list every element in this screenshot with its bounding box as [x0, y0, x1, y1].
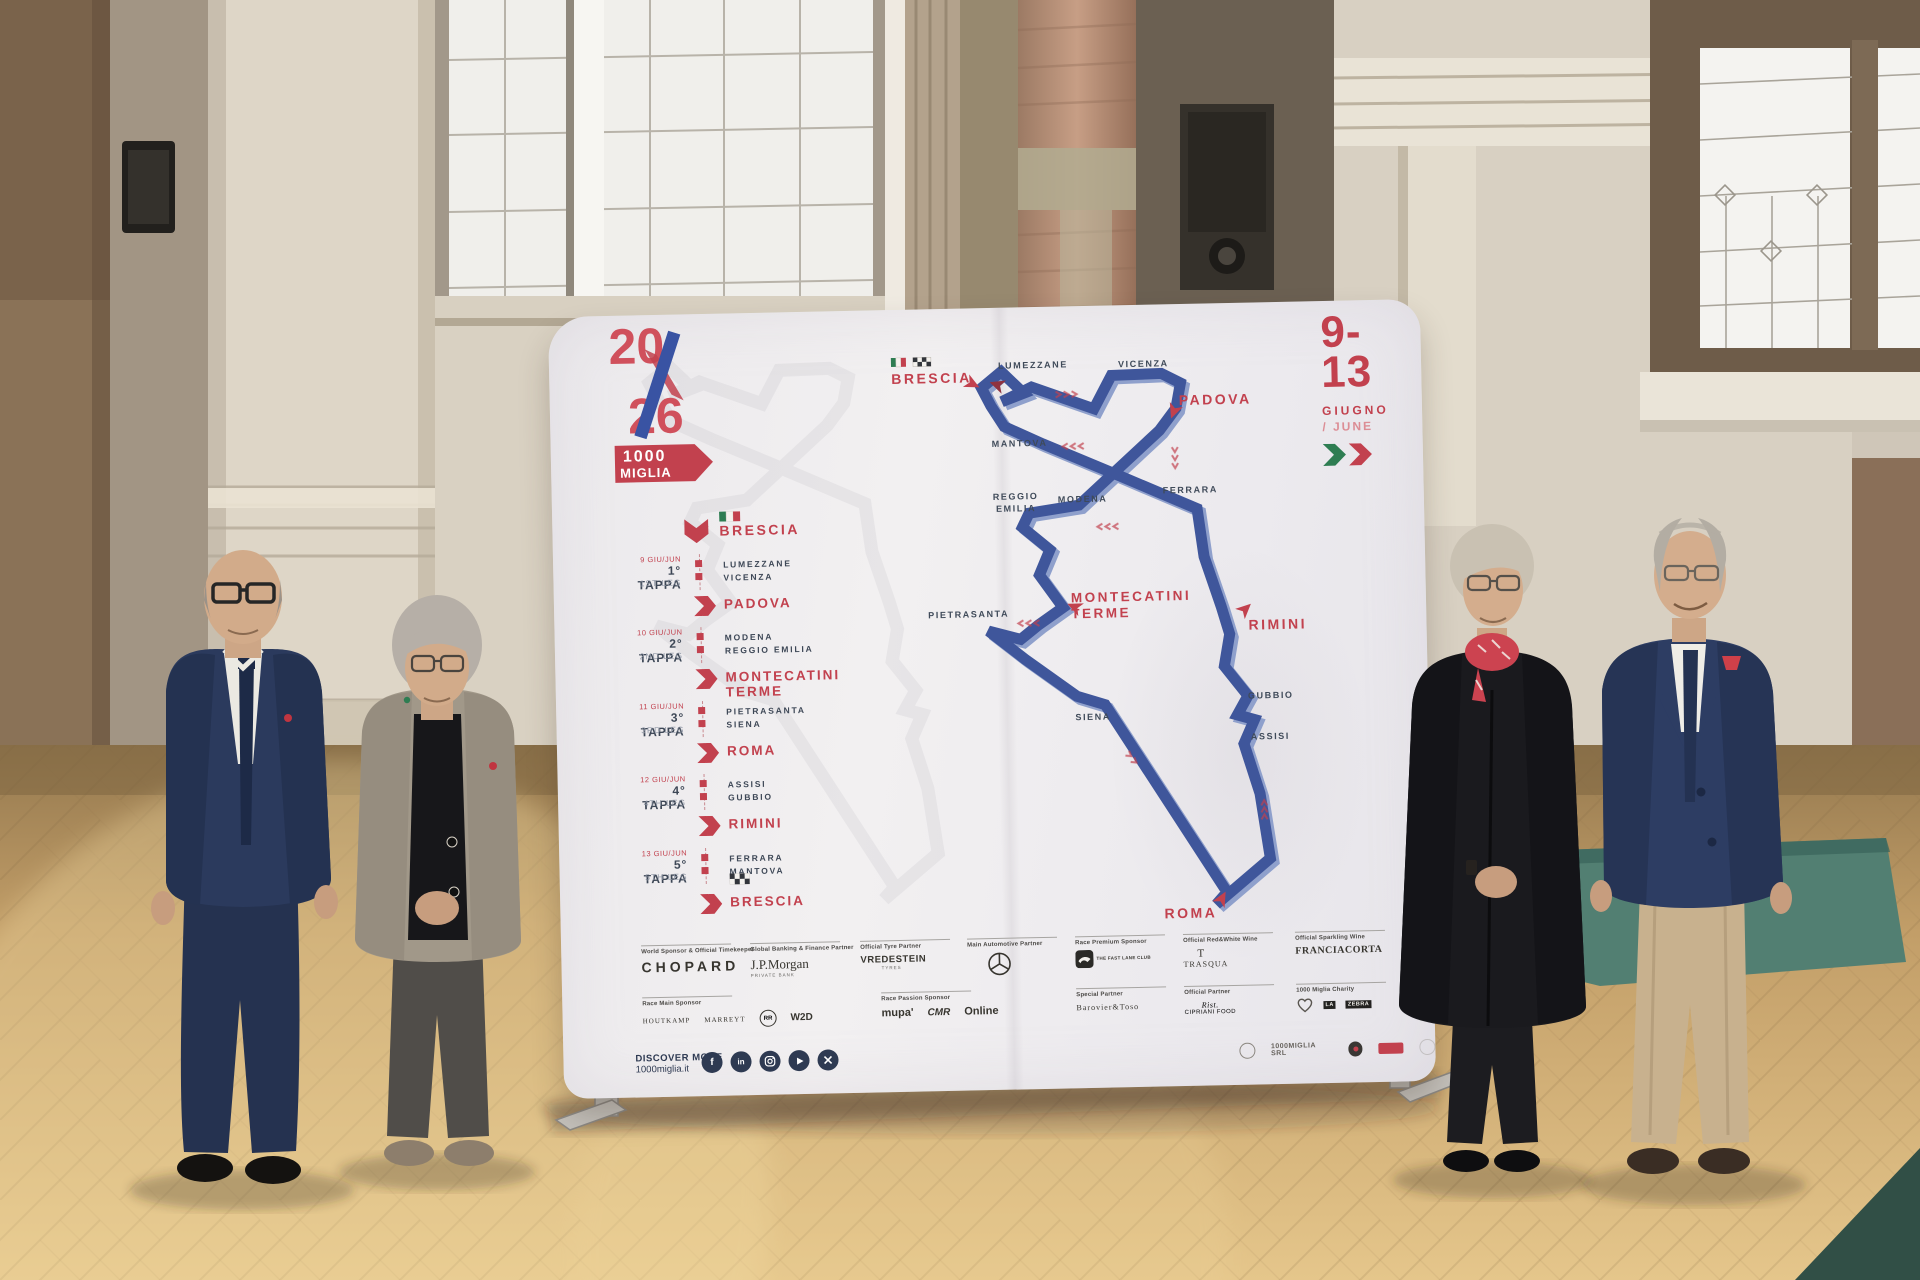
- waypoint-dot: [701, 854, 708, 861]
- chevron-right-icon: [700, 894, 722, 914]
- x-icon: [817, 1049, 838, 1070]
- sponsor-logo-text: THE FAST LANE CLUB: [1096, 955, 1151, 962]
- sponsor-logo-text: CMR: [927, 1006, 950, 1017]
- itinerary-leg-5: 13 GIU/JUN 5° TAPPA 5TH LEG FERRARA MANT…: [629, 844, 880, 921]
- leg-arrival: PADOVA: [724, 594, 874, 612]
- sponsor-group-charity: 1000 Miglia Charity LA ZEBRA: [1296, 981, 1427, 1013]
- right-window: [1640, 0, 1920, 432]
- sponsor-strip: World Sponsor & Official Timekeeper CHOP…: [633, 929, 1435, 1056]
- map-label-lumezzane: LUMEZZANE: [998, 359, 1068, 370]
- leg-arrival: RIMINI: [728, 814, 878, 832]
- zebra-logo-chip: ZEBRA: [1346, 1000, 1372, 1009]
- leg-arrival: ROMA: [727, 741, 877, 759]
- waypoint-dot: [698, 720, 705, 727]
- map-label-siena: SIENA: [1075, 712, 1111, 723]
- map-label-assisi: ASSISI: [1251, 731, 1290, 742]
- map-label-roma: ROMA: [1164, 904, 1217, 921]
- map-label-brescia: BRESCIA: [891, 369, 972, 387]
- map-label-modena: MODENA: [1058, 494, 1108, 505]
- sponsor-label: Race Main Sponsor: [642, 997, 872, 1008]
- waypoint-dot: [697, 633, 704, 640]
- leg-arrival: MONTECATINI TERME: [725, 667, 876, 699]
- sponsor-label: Race Premium Sponsor: [1075, 938, 1177, 946]
- linkedin-icon: in: [730, 1051, 751, 1072]
- leg-via: MODENA: [725, 632, 774, 643]
- mini-ring-logo: [1239, 1043, 1255, 1059]
- sponsor-logo-text: Online: [964, 1005, 998, 1018]
- miglia-red-badge: [1378, 1042, 1403, 1054]
- event-logo: 20 26 1000 MIGLIA: [606, 316, 720, 488]
- leg-via: REGGIO EMILIA: [725, 644, 814, 656]
- sponsor-label: World Sponsor & Official Timekeeper: [641, 947, 743, 955]
- sponsor-trasqua: Official Red&White Wine T TRASQUA: [1183, 932, 1286, 969]
- date-month-en: / JUNE: [1322, 418, 1417, 434]
- left-pilaster: [208, 0, 435, 790]
- sponsor-franciacorta: Official Sparkling Wine FRANCIACORTA: [1295, 930, 1398, 957]
- map-label-reggio: REGGIO: [993, 491, 1039, 502]
- leg-number: 1ST LEG: [623, 577, 681, 588]
- leg-via: GUBBIO: [728, 792, 773, 803]
- map-label-montecatini: MONTECATINI: [1071, 588, 1192, 606]
- date-chevrons-icon: [1323, 443, 1383, 466]
- instagram-icon: [759, 1051, 780, 1072]
- sponsor-label: Main Automotive Partner: [967, 940, 1069, 948]
- map-label-mantova: MANTOVA: [992, 438, 1048, 449]
- sponsor-group-race-passion: Race Passion Sponsor mupa' CMR Online: [881, 989, 1062, 1020]
- waypoint-dot: [700, 793, 707, 800]
- sponsor-chopard: World Sponsor & Official Timekeeper CHOP…: [641, 943, 744, 975]
- sponsor-group-official: Official Partner Rist.CIPRIANI FOOD: [1184, 984, 1285, 1016]
- leg-via: SIENA: [726, 719, 761, 730]
- itinerary-leg-4: 12 GIU/JUN 4° TAPPA 4TH LEG ASSISI GUBBI…: [628, 770, 879, 847]
- sponsor-label: Official Red&White Wine: [1183, 936, 1285, 944]
- map-label-terme: TERME: [1071, 605, 1131, 621]
- waypoint-dot: [698, 707, 705, 714]
- chevron-right-icon: [695, 669, 717, 689]
- heart-icon: [1296, 997, 1313, 1012]
- mini-ghost-stamp: [1420, 1039, 1436, 1055]
- checkered-flag-icon: [730, 873, 750, 884]
- map-label-rimini: RIMINI: [1248, 615, 1307, 632]
- leg-via: PIETRASANTA: [726, 705, 806, 717]
- map-label-ferrara: FERRARA: [1163, 484, 1218, 495]
- itinerary-leg-1: 9 GIU/JUN 1° TAPPA 1ST LEG LUMEZZANE VIC…: [623, 550, 874, 627]
- sponsor-logo-text: TRASQUA: [1184, 959, 1229, 969]
- leg-number: 3RD LEG: [626, 724, 684, 735]
- chevron-down-icon: [684, 519, 708, 543]
- itinerary-leg-3: 11 GIU/JUN 3° TAPPA 3RD LEG PIETRASANTA …: [626, 697, 877, 774]
- map-start-flags: [891, 357, 931, 367]
- leg-number: 2ND LEG: [625, 650, 683, 661]
- waypoint-dot: [697, 646, 704, 653]
- leg-arrival: BRESCIA: [730, 892, 880, 910]
- left-window: [435, 0, 885, 328]
- waypoint-dot: [695, 560, 702, 567]
- sponsor-logo-text: HOUTKAMP: [643, 1016, 691, 1025]
- sponsor-group-race-main: Race Main Sponsor HOUTKAMP MARREYT RR W2…: [642, 993, 873, 1030]
- sponsor-logo-text: FRANCIACORTA: [1295, 944, 1397, 957]
- sponsor-logo-text: MARREYT: [704, 1015, 745, 1024]
- rr-circle-logo: RR: [759, 1010, 776, 1027]
- leg-number: 5TH LEG: [630, 871, 688, 882]
- leg-number: 4TH LEG: [628, 797, 686, 808]
- sponsor-fast-lane-club: Race Premium Sponsor THE FAST LANE CLUB: [1075, 934, 1178, 968]
- itinerary-list: BRESCIA 9 GIU/JUN 1° TAPPA 1ST LEG LUMEZ…: [622, 505, 881, 930]
- fast-lane-club-icon: [1075, 950, 1093, 968]
- waypoint-dot: [695, 573, 702, 580]
- map-label-emilia: EMILIA: [996, 503, 1036, 514]
- sponsor-label: Official Sparkling Wine: [1295, 934, 1397, 942]
- sponsor-logo-text: mupa': [881, 1007, 913, 1020]
- zebra-logo-chip: LA: [1323, 1000, 1336, 1008]
- logo-brand-top: 1000: [623, 448, 667, 466]
- date-badge: 9- 13 GIUGNO / JUNE: [1320, 311, 1418, 473]
- sponsor-label: Race Passion Sponsor: [881, 993, 1061, 1003]
- trasqua-mark: T: [1197, 946, 1285, 960]
- sponsor-label: Official Tyre Partner: [860, 943, 962, 951]
- leg-via: LUMEZZANE: [723, 558, 792, 569]
- italy-flag-icon: [719, 511, 741, 521]
- chevron-right-icon: [697, 743, 719, 763]
- sponsor-label: 1000 Miglia Charity: [1296, 985, 1426, 994]
- sponsor-vredestein: Official Tyre Partner VREDESTEIN TYRES: [860, 939, 963, 971]
- map-label-gubbio: GUBBIO: [1248, 690, 1294, 701]
- chevron-right-icon: [694, 596, 716, 616]
- sponsor-logo-text: VREDESTEIN: [860, 953, 962, 966]
- map-label-padova: PADOVA: [1179, 390, 1252, 408]
- sponsor-logo-text: CIPRIANI FOOD: [1185, 1009, 1237, 1016]
- map-label-vicenza: VICENZA: [1118, 358, 1169, 369]
- sponsor-logo-text: Barovier&Toso: [1076, 1002, 1139, 1012]
- youtube-icon: [788, 1050, 809, 1071]
- date-to: 13: [1321, 352, 1417, 394]
- leg-via: ASSISI: [728, 779, 767, 790]
- sponsor-group-special: Special Partner Barovier&Toso: [1076, 986, 1176, 1012]
- mini-dot-logo: [1348, 1041, 1363, 1056]
- waypoint-dot: [700, 780, 707, 787]
- sponsor-logo-text: W2D: [790, 1012, 812, 1023]
- speaker-box: [1180, 104, 1274, 290]
- itinerary-leg-2: 10 GIU/JUN 2° TAPPA 2ND LEG MODENA REGGI…: [624, 623, 875, 700]
- social-icons-row: f in: [701, 1049, 838, 1073]
- sponsor-mercedes: Main Automotive Partner: [967, 936, 1070, 976]
- chevron-right-icon: [698, 816, 720, 836]
- facebook-icon: f: [701, 1052, 722, 1073]
- itinerary-start-city: BRESCIA: [719, 521, 800, 539]
- sponsor-label: Global Banking & Finance Partner: [750, 945, 852, 953]
- date-month-it: GIUGNO: [1322, 402, 1417, 418]
- leg-via: FERRARA: [729, 852, 783, 863]
- sponsor-jpmorgan: Global Banking & Finance Partner J.P.Mor…: [750, 941, 853, 978]
- logo-brand-bottom: MIGLIA: [620, 465, 672, 481]
- sponsor-logo-sub: PRIVATE BANK: [751, 971, 853, 978]
- event-backdrop-banner: BRESCIA LUMEZZANE VICENZA PADOVA MANTOVA…: [548, 299, 1436, 1099]
- logo-1000-miglia-arrow: 1000 MIGLIA: [615, 444, 714, 483]
- waypoint-dot: [701, 867, 708, 874]
- map-label-pietrasanta: PIETRASANTA: [928, 609, 1009, 621]
- sponsor-logo-text: CHOPARD: [641, 957, 743, 975]
- press-photo-scene: BRESCIA LUMEZZANE VICENZA PADOVA MANTOVA…: [0, 0, 1920, 1280]
- imprint-text: 1000MIGLIA SRL: [1271, 1042, 1332, 1057]
- leg-via: VICENZA: [723, 572, 773, 583]
- sponsor-label: Special Partner: [1076, 990, 1176, 998]
- mercedes-star-icon: [987, 952, 1011, 976]
- sponsor-label: Official Partner: [1184, 988, 1284, 996]
